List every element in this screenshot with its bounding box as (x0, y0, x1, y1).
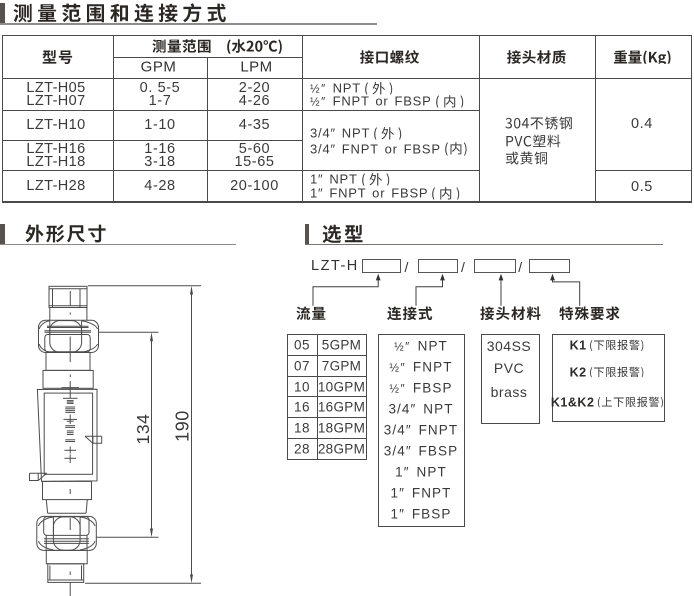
svg-text:190: 190 (173, 410, 193, 442)
svg-text:134: 134 (133, 414, 153, 445)
